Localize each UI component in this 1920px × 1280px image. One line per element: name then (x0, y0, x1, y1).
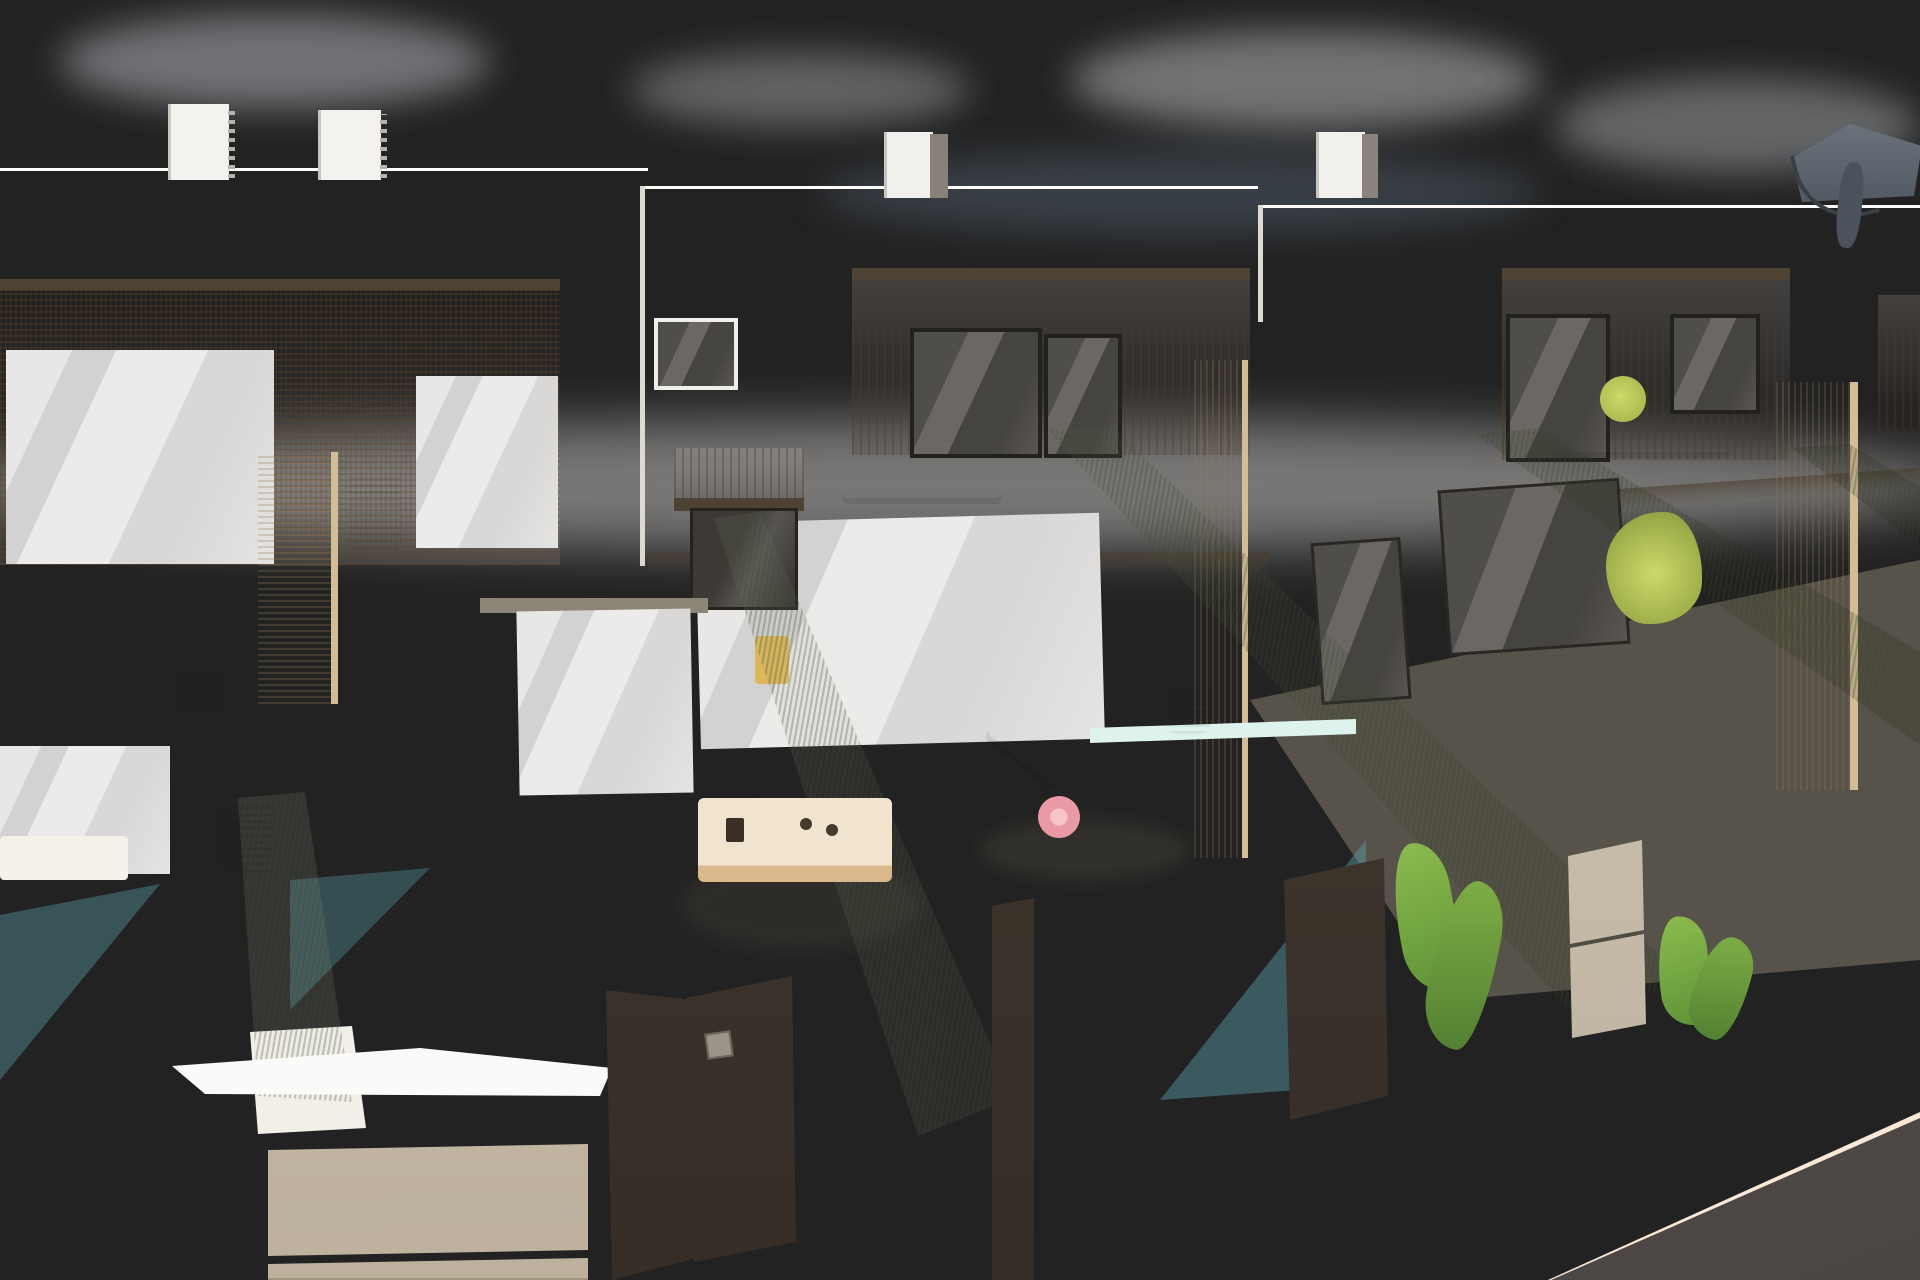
house0-table-flowers-icon (0, 818, 52, 868)
table-vase (726, 818, 744, 842)
lounger-side-table-notch (1078, 722, 1118, 762)
rooftop-plant2-icon (984, 80, 1090, 204)
villa-render-scene (0, 0, 1920, 1280)
table-cup (826, 824, 838, 836)
rooftop-box4a (1630, 132, 1790, 220)
house2-patio-plant-pot (1164, 686, 1212, 734)
rooftop-box2-door-reveal (930, 134, 948, 198)
pillar-top-plant-icon (256, 292, 346, 474)
dining-chair (788, 748, 846, 804)
rooftop-box3-door-reveal (1362, 134, 1378, 198)
house3-lounger (1400, 635, 1504, 728)
rooftop-box1-door-left (168, 104, 229, 180)
house1-patio-plant-pot (178, 672, 226, 714)
gate1-lock-plate (704, 1030, 733, 1059)
entry-window-slit (654, 318, 738, 390)
dining-chair-front (700, 884, 772, 978)
rooftop-box3-door (1316, 132, 1365, 198)
yard-palm-icon (1606, 512, 1702, 624)
entry-lintel-wood (674, 448, 804, 502)
poolside-plant-pot (218, 806, 276, 872)
rooftop-box2-door (884, 132, 933, 198)
house3-wood-soffit (1502, 268, 1790, 280)
house1-ground-door-mullion (602, 614, 607, 790)
rooftop-box3-side (1264, 112, 1282, 208)
rooftop-box1-door-left-vent (228, 108, 235, 178)
rooftop-box3 (1280, 106, 1500, 206)
rooftop-box1-door-right-vent (380, 114, 387, 178)
rooftop-box4a-side (1618, 140, 1632, 220)
house2-wood-soffit (852, 268, 1250, 280)
table-cup (800, 818, 812, 830)
rooftop-box2-side (822, 94, 842, 204)
balcony-agave-icon (122, 362, 222, 478)
rooftop-box1-side (124, 30, 154, 180)
rooftop-plant1-icon (268, 134, 332, 184)
